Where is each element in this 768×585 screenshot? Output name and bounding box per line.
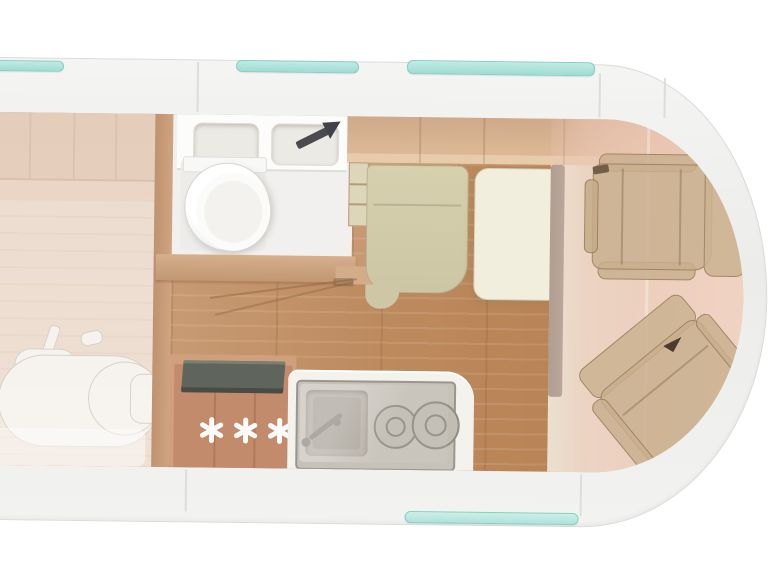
dinette-bench (365, 164, 469, 293)
bathroom-wall (155, 254, 355, 282)
snowflake-icon (199, 417, 223, 441)
interior (0, 112, 745, 474)
refrigerator (169, 354, 296, 469)
garage-scooter-ghost (0, 312, 165, 467)
seat-backrest (704, 159, 746, 278)
garage-floor-glow (0, 428, 146, 467)
window-bottom-front (404, 511, 578, 525)
freezer-rating (199, 414, 291, 445)
window-top-center (236, 60, 359, 74)
window-top-rear (0, 60, 64, 72)
rear-bed-area (0, 112, 161, 467)
seat-cushion (592, 163, 713, 270)
cushion-seam (679, 169, 682, 265)
cab-seat-swivel (573, 297, 745, 474)
seat-headrest (584, 179, 599, 253)
window-top-front (407, 60, 595, 76)
fridge-top-panel (181, 360, 286, 393)
bench-seam (373, 204, 461, 207)
snowflake-icon (233, 418, 257, 442)
door-latch (333, 278, 353, 286)
cab-seat-front (583, 153, 745, 281)
scooter-mirror (80, 329, 104, 347)
seat-rotated-frame (567, 286, 745, 474)
glass-lid (299, 384, 448, 464)
sink-hob-unit (295, 380, 456, 472)
entrance-arrow-icon (293, 116, 347, 149)
cushion-seam (621, 169, 624, 265)
shelf-line (349, 203, 367, 205)
shelf-line (350, 183, 368, 185)
floorplan-canvas (0, 0, 768, 585)
